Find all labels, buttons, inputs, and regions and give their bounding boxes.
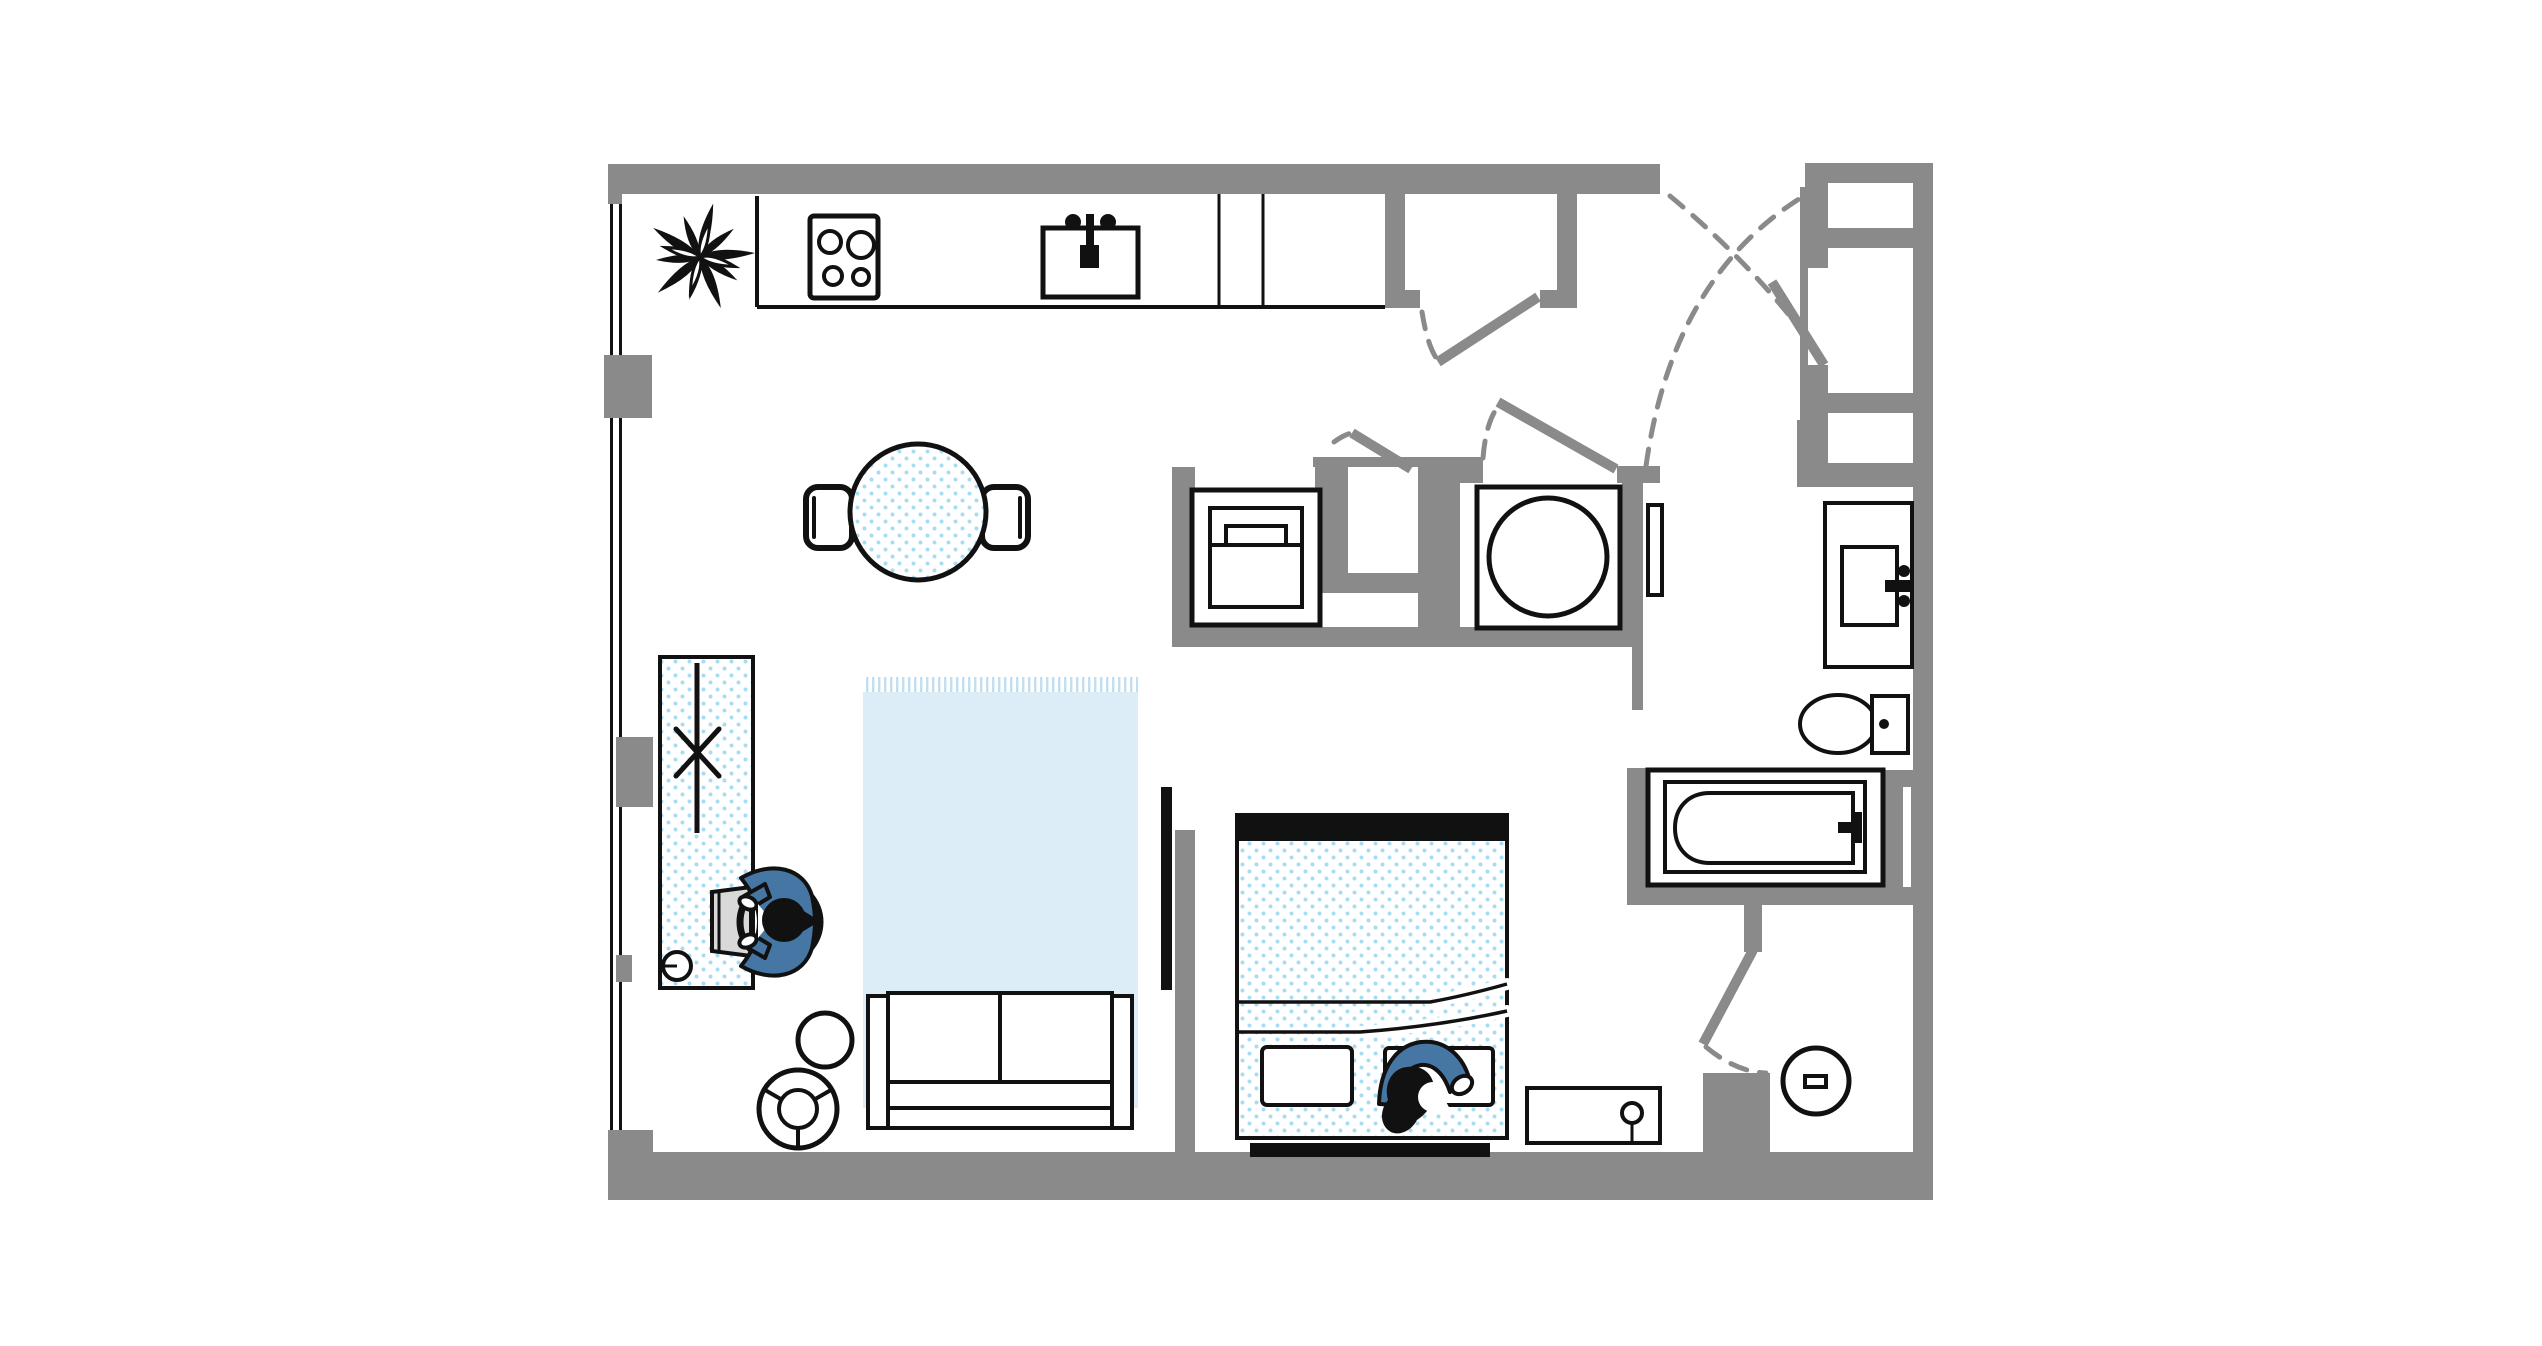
dining-table: Round dining table xyxy=(850,444,986,580)
utility-wall-thin-top xyxy=(1313,457,1433,467)
living-area: Area rug with fringe Desk with table run… xyxy=(660,657,1172,1148)
wall-stub xyxy=(1797,420,1808,463)
faucet-spout-icon xyxy=(1080,245,1099,268)
plant-icon: Potted plant xyxy=(651,202,755,310)
bathroom: Bathroom vanity sink Toilet Bathtub with… xyxy=(1648,503,1912,1114)
sofa-armrest xyxy=(868,996,888,1128)
wall-thin-divider xyxy=(1632,647,1643,710)
kitchen-sink: Kitchen sink with faucet xyxy=(1043,214,1138,297)
flush-button-icon xyxy=(1879,719,1889,729)
floor-plan: Window wall xyxy=(0,0,2542,1346)
entry-door-leaf xyxy=(1772,282,1824,365)
dining-area: Dining chair left Dining chair right Rou… xyxy=(806,444,1028,580)
nightstand-console: Console with lamp xyxy=(1527,1088,1660,1143)
wall-kitchen-column-foot xyxy=(1405,290,1420,308)
wall-pier xyxy=(604,355,652,418)
wall-corner-nw xyxy=(608,164,622,204)
wall-pier xyxy=(616,737,653,807)
tub-faucet-icon xyxy=(1852,812,1862,843)
wc-door-leaf xyxy=(1703,950,1753,1044)
shower-room: Round floor drain xyxy=(1783,1048,1849,1114)
wc-door-stub xyxy=(1744,905,1762,952)
utility-door-arc xyxy=(1334,433,1351,442)
wall-top xyxy=(608,164,1660,194)
tub-basin xyxy=(1675,793,1853,863)
wardrobe-left-upper xyxy=(1805,182,1828,268)
wc-wall-chunk xyxy=(1703,1073,1770,1157)
bed-headboard: Headboard bench xyxy=(1250,1143,1490,1157)
toilet: Toilet xyxy=(1800,695,1908,753)
rug-fringe xyxy=(863,677,1138,692)
utility-closets: Top-load washer Dryer with round drum xyxy=(1192,487,1620,628)
sofa-backrest xyxy=(888,1082,1112,1108)
pouf-table: Round pouf table xyxy=(759,1070,837,1148)
bedroom-door-leaf xyxy=(1498,402,1616,469)
hall-closet-door: Hall closet door xyxy=(1422,297,1538,363)
burner-icon xyxy=(824,267,842,285)
wall-pier xyxy=(616,955,632,982)
wall-closet-column xyxy=(1557,192,1577,308)
door-hinge-band xyxy=(1617,466,1660,483)
burner-icon xyxy=(819,231,841,253)
faucet-spout-icon xyxy=(1885,580,1912,592)
vanity-sink: Bathroom vanity sink xyxy=(1825,503,1912,667)
window-wall: Window wall xyxy=(610,203,622,1130)
sofa-cushion xyxy=(888,993,1000,1082)
sofa-armrest xyxy=(1112,996,1132,1128)
wall-step-sw xyxy=(608,1130,653,1152)
burner-icon xyxy=(848,232,874,258)
washer-control-panel xyxy=(1226,526,1286,545)
wall-right xyxy=(1913,163,1933,1200)
tv: Wall-mounted TV xyxy=(1161,787,1172,990)
wardrobe-shelf xyxy=(1828,393,1913,413)
bathtub: Bathtub with faucet xyxy=(1648,770,1883,885)
window-glass-line xyxy=(619,203,622,1130)
stove: Cooktop with four burners xyxy=(810,216,878,298)
person-head xyxy=(762,898,806,942)
wall-bottom xyxy=(608,1152,1933,1200)
closet-door-arc xyxy=(1422,312,1440,363)
dryer: Dryer with round drum xyxy=(1477,487,1620,628)
drain-slot xyxy=(1805,1076,1826,1087)
wardrobe-shelf xyxy=(1828,228,1913,248)
toilet-bowl xyxy=(1800,695,1876,753)
faucet-handle-icon xyxy=(1898,595,1910,607)
dryer-drum xyxy=(1489,498,1607,616)
leaning-panel: Leaning door panel xyxy=(1648,505,1662,595)
faucet-handle-icon xyxy=(1898,565,1910,577)
closet-door-leaf xyxy=(1438,297,1538,362)
tv-partial-wall xyxy=(1175,830,1195,1153)
wall-closet-column-foot xyxy=(1540,290,1557,308)
dining-chair-left: Dining chair left xyxy=(806,487,852,548)
toilet-tank xyxy=(1872,696,1908,753)
bed: Double bed with duvet Person sleeping in… xyxy=(1237,815,1507,1157)
bedroom-door: Bedroom door xyxy=(1483,402,1616,469)
bed-foot-board xyxy=(1237,815,1507,841)
burner-icon xyxy=(853,269,869,285)
wardrobe-top xyxy=(1805,163,1933,183)
dining-chair-right: Dining chair right xyxy=(982,487,1028,548)
faucet-stem-icon xyxy=(1086,214,1094,248)
sofa: Two-seat sofa xyxy=(868,993,1132,1128)
wall-niche xyxy=(1903,787,1911,887)
utility-wall-right xyxy=(1622,483,1643,647)
sofa-cushion xyxy=(1000,993,1112,1082)
side-table: Round side table xyxy=(798,1013,852,1067)
kitchen: Kitchen counter Cooktop with four burner… xyxy=(651,194,1385,310)
entry-door-arc xyxy=(1646,199,1799,466)
washer-lid xyxy=(1210,508,1302,607)
desk-zone: Desk with table runner decor Cup on desk… xyxy=(660,657,820,988)
bathroom-top-wall xyxy=(1797,463,1913,487)
sofa-back-frame xyxy=(883,1108,1117,1128)
floor-plan-canvas: Window wall xyxy=(0,0,2542,1346)
faucet-handle-icon xyxy=(1100,214,1116,230)
lamp xyxy=(1622,1103,1642,1123)
pillow xyxy=(1262,1047,1352,1105)
washer: Top-load washer xyxy=(1192,490,1320,625)
wall-kitchen-column xyxy=(1385,192,1405,308)
shower-room-door: Shower room door xyxy=(1703,950,1766,1073)
bedroom-door-arc xyxy=(1483,404,1500,458)
entry-door-arc xyxy=(1670,196,1801,330)
window-glass-line xyxy=(610,203,613,1130)
wc-door-arc xyxy=(1706,1047,1766,1073)
utility-wall-mid2 xyxy=(1418,467,1460,647)
tub-left-wall xyxy=(1627,768,1647,905)
faucet-handle-icon xyxy=(1065,214,1081,230)
bathroom-bottom-wall xyxy=(1627,887,1907,905)
